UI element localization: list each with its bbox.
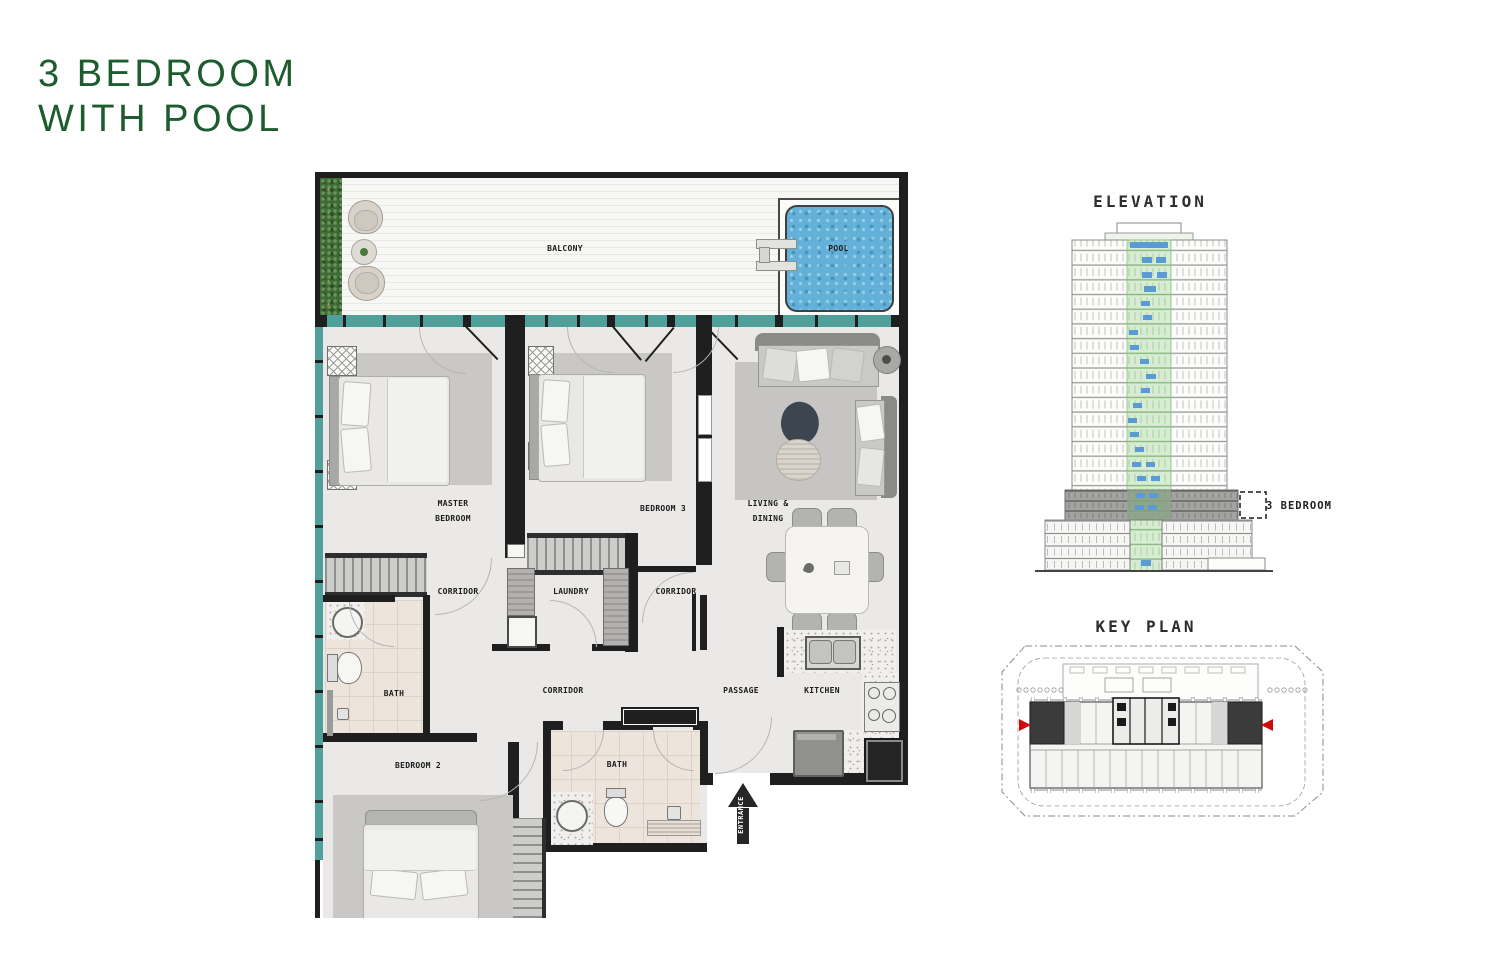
mullion [420, 315, 423, 327]
podium-annex [1208, 558, 1265, 570]
mullion [315, 745, 323, 748]
toilet [604, 797, 628, 827]
living-dining-label-line1: LIVING & [708, 496, 828, 511]
sink-basin [809, 640, 832, 664]
wall [899, 172, 908, 785]
mullion [383, 315, 386, 327]
balcony-hedge [320, 178, 342, 315]
mullion [855, 315, 858, 327]
balcony-lounge-chair [348, 266, 385, 301]
bath2-label: BATH [567, 757, 667, 772]
wall-niche [507, 544, 525, 558]
unit-marker-left [1019, 719, 1031, 731]
mullion [315, 690, 323, 693]
wall [638, 566, 696, 572]
shower-tray [647, 820, 701, 836]
laundry-cabinet [507, 568, 535, 616]
cabinet-top [797, 734, 836, 740]
tower-parapet [1117, 223, 1181, 233]
master-bedroom-label: MASTER BEDROOM [393, 496, 513, 526]
mullion [645, 315, 648, 327]
balcony-table [351, 239, 377, 265]
highlighted-unit-left [1030, 702, 1064, 744]
corridor-right-label: CORRIDOR [626, 584, 726, 599]
shower-head [337, 708, 349, 720]
bath1-label: BATH [344, 686, 444, 701]
elevation-title: ELEVATION [1040, 192, 1260, 211]
balcony-lounge-chair [348, 200, 383, 234]
kitchen-sink [805, 636, 861, 670]
elevation-annotation: 3 BEDROOM [1266, 500, 1356, 512]
floor-plan: ENTRANCE BALCONY POOL MASTER BEDROOM BED… [315, 170, 908, 918]
wall [323, 733, 477, 742]
bed-pillow [419, 867, 468, 900]
bedroom2-label: BEDROOM 2 [358, 758, 478, 773]
mullion [463, 315, 471, 327]
chair-seat [354, 210, 378, 231]
burner [883, 687, 896, 700]
pool-ladder-post [759, 247, 770, 263]
wall-niche [698, 438, 712, 482]
corridor-main-label: CORRIDOR [513, 683, 613, 698]
bed-pillow [370, 868, 419, 901]
page-title-line1: 3 BEDROOM [38, 52, 298, 97]
wall [777, 627, 784, 677]
sofa-cushion [829, 347, 865, 383]
burner [868, 709, 880, 721]
mullion [315, 470, 323, 473]
bed-pillow [340, 381, 371, 427]
bed-pillow [340, 427, 372, 473]
sofa-cushion [856, 447, 885, 487]
glass-wall-left [315, 327, 323, 860]
elevation-tower [1035, 223, 1273, 571]
laundry-cabinet [603, 568, 629, 646]
bedroom3-nightstand [528, 346, 554, 376]
mullion [667, 315, 675, 327]
wall [323, 595, 395, 602]
wall [423, 595, 430, 742]
bed-pillow [541, 379, 571, 423]
wall [700, 773, 713, 785]
living-dining-label: LIVING & DINING [708, 496, 828, 526]
bed-duvet [364, 830, 476, 871]
tower-crown [1105, 233, 1193, 240]
bedroom2-wardrobe [508, 818, 546, 918]
toilet [337, 652, 362, 684]
kitchen-cabinet [793, 730, 844, 777]
wall [891, 315, 899, 327]
coffee-table-stone [776, 439, 821, 481]
master-nightstand [327, 346, 357, 376]
mullion [315, 415, 323, 418]
passage-vanity [623, 709, 697, 725]
bath2-sink [556, 800, 588, 832]
page-title: 3 BEDROOM WITH POOL [38, 52, 298, 142]
mullion [577, 315, 580, 327]
corridor-left-label: CORRIDOR [408, 584, 508, 599]
bed-duvet [583, 376, 643, 478]
unit-midgray [1064, 702, 1080, 744]
entrance-arrow: ENTRANCE [728, 783, 758, 845]
highlighted-unit-right [1228, 702, 1262, 744]
mullion [315, 800, 323, 803]
mullion [315, 635, 323, 638]
sofa-cushion [762, 347, 798, 383]
chair-seat [355, 272, 379, 294]
shower-rail [327, 690, 333, 736]
key-plan-drawing [985, 640, 1340, 825]
wall [315, 860, 320, 918]
amenity-strip [1063, 664, 1258, 698]
dining-table [785, 526, 869, 614]
table-plant [360, 248, 368, 256]
pool [785, 205, 894, 312]
table-decor [803, 562, 816, 575]
wall [315, 172, 908, 178]
entrance-label: ENTRANCE [737, 784, 749, 846]
three-bedroom-marker-box [1240, 492, 1266, 518]
wall-niche [698, 395, 712, 435]
brochure-page: 3 BEDROOM WITH POOL [0, 0, 1500, 965]
mullion [315, 580, 323, 583]
plant [882, 355, 891, 364]
sofa-cushion [856, 403, 886, 442]
elevation-drawing [1030, 220, 1330, 585]
balcony-row [1030, 788, 1262, 793]
bed-pillow [540, 423, 571, 467]
master-bedroom-label-line1: MASTER [393, 496, 513, 511]
sink-basin [833, 640, 856, 664]
sofa-cushion [795, 347, 830, 382]
unit-midgray [1212, 702, 1228, 744]
table-decor [834, 561, 850, 575]
fridge [866, 740, 903, 782]
wall [700, 595, 707, 650]
side-table [873, 346, 901, 374]
washer [507, 616, 537, 648]
mullion [815, 315, 818, 327]
page-title-line2: WITH POOL [38, 97, 298, 142]
mullion [775, 315, 783, 327]
master-bedroom-label-line2: BEDROOM [393, 511, 513, 526]
core [1113, 698, 1179, 744]
kitchen-label: KITCHEN [772, 683, 872, 698]
key-plan-title: KEY PLAN [1046, 617, 1246, 636]
mullion [545, 315, 548, 327]
mullion [315, 838, 323, 841]
bedroom3-label: BEDROOM 3 [603, 501, 723, 516]
mullion [735, 315, 738, 327]
living-dining-label-line2: DINING [708, 511, 828, 526]
balcony-label: BALCONY [375, 241, 755, 256]
pool-label: POOL [778, 241, 899, 256]
bed-duvet [387, 378, 447, 482]
unit-marker-right [1261, 719, 1273, 731]
mullion [343, 315, 346, 327]
wall [315, 172, 320, 325]
burner [882, 709, 896, 723]
mullion [315, 360, 323, 363]
shower-head [667, 806, 681, 820]
key-plan-site [1002, 646, 1323, 816]
mullion [315, 525, 323, 528]
